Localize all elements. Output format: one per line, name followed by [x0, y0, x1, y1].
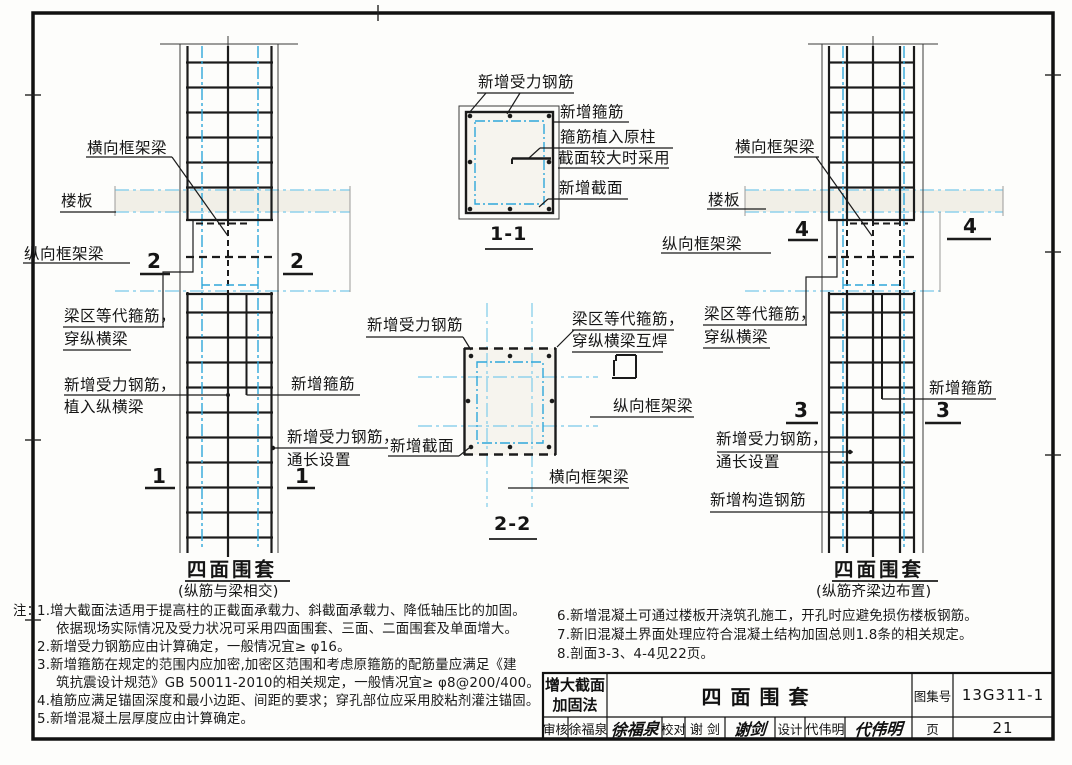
note-line-2: 2.新增受力钢筋应由计算确定，一般情况宜≥ φ16。	[37, 640, 351, 657]
left-label-equiv-stirrup-1: 梁区等代箍筋，	[64, 308, 176, 326]
titleblock-review-label: 审核	[543, 717, 568, 739]
note-line-6: 6.新增混凝土可通过楼板开浇筑孔施工，开孔时应避免损伤楼板钢筋。	[557, 609, 978, 626]
note-line-4: 4.植筋应满足锚固深度和最小边距、间距的要求；穿孔部位应采用胶粘剂灌注锚固。	[37, 694, 539, 711]
titleblock-design-label: 设计	[775, 717, 805, 739]
section-mark-3-left: 3	[794, 399, 808, 422]
left-label-equiv-stirrup-2: 穿纵横梁	[64, 331, 128, 349]
d11-title: 1-1	[490, 224, 527, 246]
d11-label-new-main-bar: 新增受力钢筋	[478, 74, 574, 92]
method-line2: 加固法	[552, 695, 597, 715]
left-view-title: 四面围套	[187, 559, 277, 581]
titleblock-page-no: 21	[953, 717, 1053, 739]
stirrup-symbol	[612, 355, 636, 378]
d22-label-transverse: 横向框架梁	[549, 469, 629, 487]
left-view-subtitle: (纵筋与梁相交)	[178, 584, 279, 601]
right-view-subtitle: (纵筋齐梁边布置)	[816, 584, 932, 601]
titleblock-method-cell: 增大截面 加固法	[543, 673, 607, 717]
right-label-slab: 楼板	[708, 192, 740, 210]
section-mark-4-left: 4	[795, 218, 809, 241]
d22-label-equiv-1: 梁区等代箍筋，	[572, 311, 684, 329]
d11-label-new-section: 新增截面	[559, 180, 623, 198]
right-label-through-bar-1: 新增受力钢筋，	[716, 431, 828, 449]
titleblock-proof-name: 谢 剑	[685, 717, 725, 739]
right-view-title: 四面围套	[834, 559, 924, 581]
note-line-7: 7.新旧混凝土界面处理应符合混凝土结构加固总则1.8条的相关规定。	[557, 628, 973, 645]
titleblock-review-name: 徐福泉	[568, 717, 608, 739]
left-label-slab: 楼板	[61, 193, 93, 211]
section-mark-3-right: 3	[936, 399, 950, 422]
left-label-transverse-beam: 横向框架梁	[87, 140, 167, 158]
titleblock-design-signature: 代伟明	[844, 716, 913, 740]
section-mark-4-right: 4	[963, 215, 977, 238]
left-label-planted-bar-2: 植入纵横梁	[64, 399, 144, 417]
d11-label-new-stirrup: 新增箍筋	[560, 104, 624, 122]
method-line1: 增大截面	[545, 675, 605, 695]
note-line-3: 3.新增箍筋在规定的范围内应加密,加密区范围和考虑原箍筋的配筋量应满足《建	[37, 658, 517, 675]
left-label-planted-bar-1: 新增受力钢筋，	[64, 377, 176, 395]
titleblock-atlas-label: 图集号	[912, 673, 953, 717]
note-line-1b: 依据现场实际情况及受力状况可采用四面围套、三面、二面围套及单面增大。	[56, 622, 518, 639]
d22-label-longitudinal: 纵向框架梁	[613, 398, 693, 416]
d11-label-planted-2: 截面较大时采用	[558, 150, 670, 168]
right-label-construct-bar: 新增构造钢筋	[710, 492, 806, 510]
right-label-longitudinal-beam: 纵向框架梁	[662, 236, 742, 254]
right-label-transverse-beam: 横向框架梁	[735, 139, 815, 157]
titleblock-page-label: 页	[912, 717, 953, 739]
right-label-through-bar-2: 通长设置	[716, 454, 780, 472]
titleblock-atlas-no: 13G311-1	[953, 673, 1053, 717]
d22-label-equiv-2: 穿纵横梁互焊	[572, 333, 668, 351]
right-label-equiv-stirrup-2: 穿纵横梁	[704, 329, 768, 347]
section-mark-1-left: 1	[152, 465, 166, 488]
d11-label-planted-1: 箍筋植入原柱	[560, 129, 656, 147]
titleblock-drawing-title: 四面围套	[607, 673, 912, 717]
left-label-longitudinal-beam: 纵向框架梁	[24, 246, 104, 264]
d22-label-new-main-bar: 新增受力钢筋	[367, 317, 463, 335]
drawing-sheet: 横向框架梁 楼板 纵向框架梁 梁区等代箍筋， 穿纵横梁 新增受力钢筋， 植入纵横…	[0, 0, 1072, 765]
d22-title: 2-2	[494, 514, 531, 536]
section-mark-2-left: 2	[147, 250, 161, 273]
section-mark-1-right: 1	[295, 465, 309, 488]
titleblock-proof-signature: 谢剑	[724, 716, 776, 740]
right-label-equiv-stirrup-1: 梁区等代箍筋，	[704, 306, 816, 324]
titleblock-proof-label: 校对	[662, 717, 685, 739]
note-line-8: 8.剖面3-3、4-4见22页。	[557, 647, 714, 664]
note-line-1: 1.增大截面法适用于提高柱的正截面承载力、斜截面承载力、降低轴压比的加固。	[37, 604, 526, 621]
left-label-new-stirrup: 新增箍筋	[291, 376, 355, 394]
d22-label-new-section: 新增截面	[390, 438, 454, 456]
note-line-5: 5.新增混凝土层厚度应由计算确定。	[37, 712, 254, 729]
section-mark-2-right: 2	[290, 250, 304, 273]
note-line-3b: 筑抗震设计规范》GB 50011-2010的相关规定，一般情况宜≥ φ8@200…	[56, 676, 540, 693]
left-label-through-bar-1: 新增受力钢筋，	[287, 429, 399, 447]
titleblock-review-signature: 徐福泉	[607, 716, 663, 740]
titleblock-design-name: 代伟明	[805, 717, 845, 739]
right-label-new-stirrup: 新增箍筋	[929, 380, 993, 398]
